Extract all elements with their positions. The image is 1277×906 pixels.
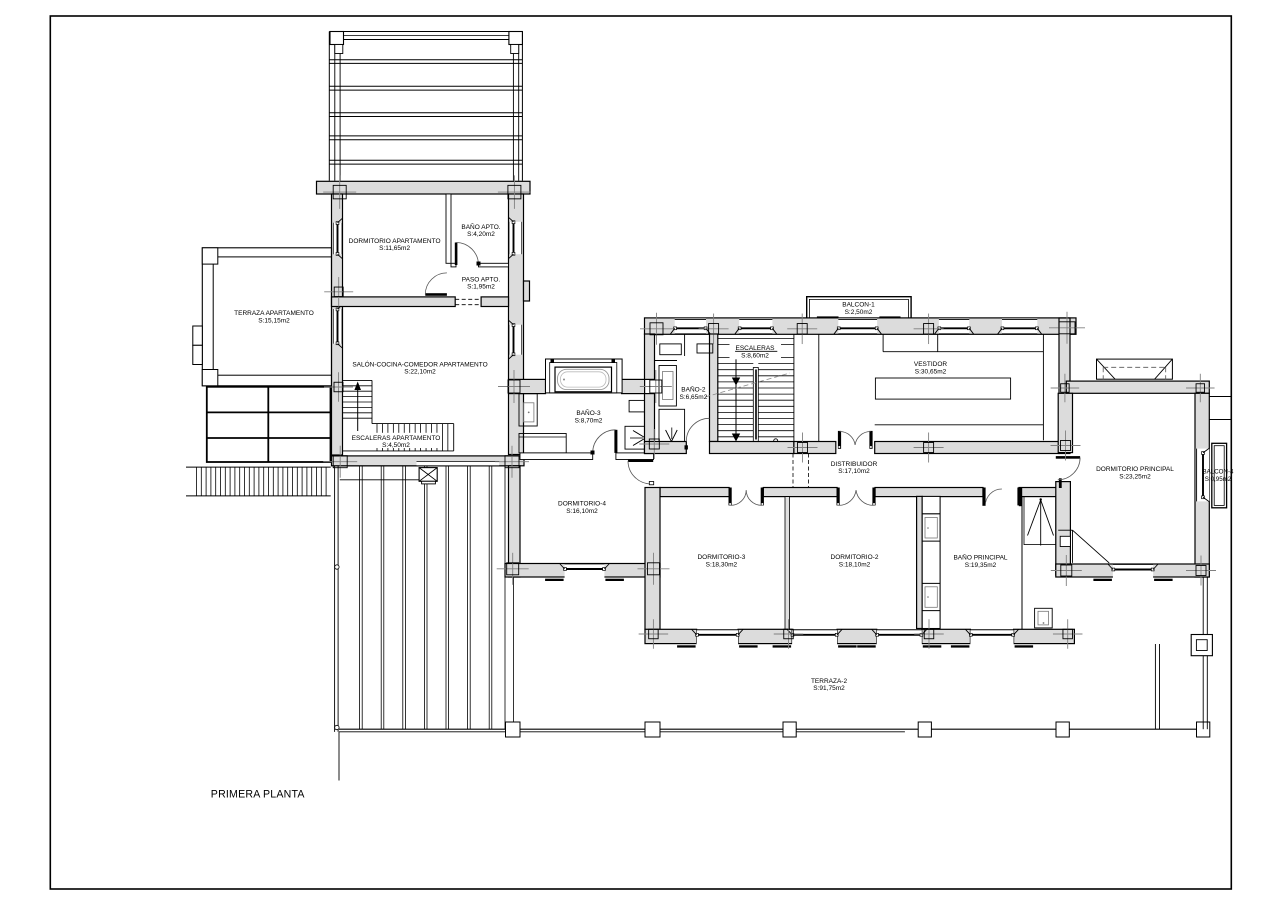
svg-text:S:18,10m2: S:18,10m2 xyxy=(839,561,871,568)
svg-text:DORMITORIO-3: DORMITORIO-3 xyxy=(697,554,745,561)
svg-text:S:19,35m2: S:19,35m2 xyxy=(965,562,997,569)
svg-text:S:4,50m2: S:4,50m2 xyxy=(382,442,410,449)
svg-text:S:17,10m2: S:17,10m2 xyxy=(838,468,870,475)
svg-text:S:23,25m2: S:23,25m2 xyxy=(1119,474,1151,481)
svg-text:S:2,50m2: S:2,50m2 xyxy=(845,309,873,316)
svg-text:BAÑO-3: BAÑO-3 xyxy=(576,408,601,417)
svg-text:TERRAZA-2: TERRAZA-2 xyxy=(811,678,848,685)
svg-text:S:0,95m2: S:0,95m2 xyxy=(1205,476,1232,483)
svg-text:DORMITORIO-2: DORMITORIO-2 xyxy=(831,554,879,561)
svg-text:BAÑO-2: BAÑO-2 xyxy=(681,385,706,394)
svg-text:TERRAZA APARTAMENTO: TERRAZA APARTAMENTO xyxy=(234,310,314,317)
svg-text:BAÑO PRINCIPAL: BAÑO PRINCIPAL xyxy=(953,553,1007,562)
svg-text:S:11,65m2: S:11,65m2 xyxy=(379,245,410,252)
svg-text:S:6,65m2: S:6,65m2 xyxy=(679,394,707,401)
svg-text:S:30,65m2: S:30,65m2 xyxy=(915,369,947,376)
svg-text:S:16,10m2: S:16,10m2 xyxy=(566,508,598,515)
svg-text:DORMITORIO-4: DORMITORIO-4 xyxy=(558,501,606,508)
svg-text:S:8,60m2: S:8,60m2 xyxy=(741,352,769,359)
svg-text:S:91,75m2: S:91,75m2 xyxy=(813,685,845,692)
svg-text:S:4,20m2: S:4,20m2 xyxy=(467,231,495,238)
svg-text:S:15,15m2: S:15,15m2 xyxy=(258,317,290,324)
svg-text:S:1,95m2: S:1,95m2 xyxy=(467,284,495,291)
svg-text:PRIMERA PLANTA: PRIMERA PLANTA xyxy=(211,788,306,800)
svg-text:BALCON-4: BALCON-4 xyxy=(1203,469,1235,476)
svg-text:DORMITORIO PRINCIPAL: DORMITORIO PRINCIPAL xyxy=(1096,466,1174,473)
svg-text:VESTIDOR: VESTIDOR xyxy=(914,361,948,368)
svg-text:BALCON-1: BALCON-1 xyxy=(842,302,875,309)
svg-text:ESCALERAS: ESCALERAS xyxy=(735,345,775,352)
svg-text:DORMITORIO APARTAMENTO: DORMITORIO APARTAMENTO xyxy=(349,238,441,245)
svg-text:ESCALERAS APARTAMENTO: ESCALERAS APARTAMENTO xyxy=(352,435,441,442)
svg-text:BAÑO APTO.: BAÑO APTO. xyxy=(461,222,500,231)
svg-text:S:18,30m2: S:18,30m2 xyxy=(706,561,738,568)
svg-text:DISTRIBUIDOR: DISTRIBUIDOR xyxy=(831,461,878,468)
svg-text:S:22,10m2: S:22,10m2 xyxy=(404,369,436,376)
svg-text:SALÓN-COCINA-COMEDOR APARTAMEN: SALÓN-COCINA-COMEDOR APARTAMENTO xyxy=(352,359,487,368)
svg-text:S:8,70m2: S:8,70m2 xyxy=(575,417,603,424)
svg-text:PASO APTO.: PASO APTO. xyxy=(462,276,501,283)
